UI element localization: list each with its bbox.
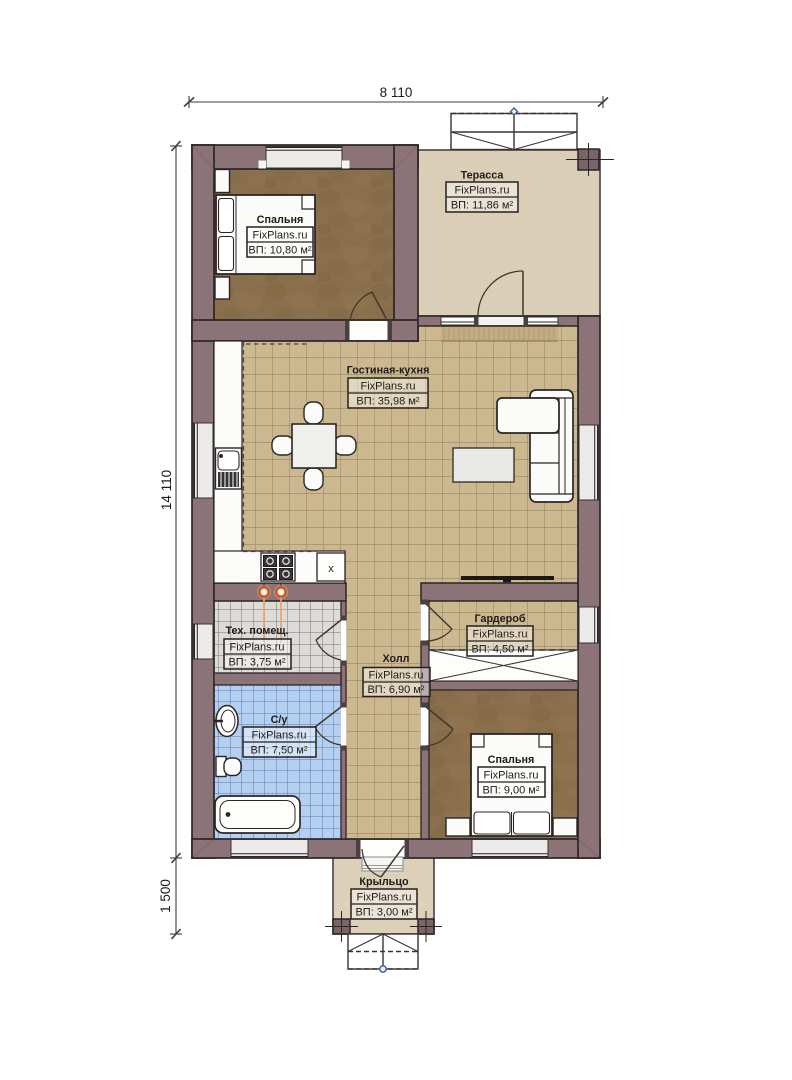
svg-text:Холл: Холл: [382, 653, 409, 665]
svg-text:ВП: 6,90 м²: ВП: 6,90 м²: [367, 684, 424, 696]
svg-text:Терасса: Терасса: [461, 170, 505, 182]
svg-text:FixPlans.ru: FixPlans.ru: [472, 629, 527, 641]
svg-text:ВП: 3,75 м²: ВП: 3,75 м²: [228, 657, 285, 669]
svg-text:ВП: 11,86 м²: ВП: 11,86 м²: [451, 200, 514, 212]
svg-text:Спальня: Спальня: [488, 754, 535, 766]
svg-text:ВП: 9,00 м²: ВП: 9,00 м²: [482, 785, 539, 797]
svg-text:FixPlans.ru: FixPlans.ru: [454, 185, 509, 197]
svg-text:Крыльцо: Крыльцо: [359, 876, 409, 888]
svg-text:14 110: 14 110: [159, 470, 174, 510]
svg-text:ВП: 10,80 м²: ВП: 10,80 м²: [248, 245, 312, 257]
svg-text:FixPlans.ru: FixPlans.ru: [252, 230, 307, 242]
svg-text:1 500: 1 500: [158, 879, 173, 913]
svg-text:С/у: С/у: [271, 714, 288, 726]
svg-text:FixPlans.ru: FixPlans.ru: [229, 642, 284, 654]
svg-text:8 110: 8 110: [380, 85, 413, 100]
svg-text:Гостиная-кухня: Гостиная-кухня: [347, 365, 430, 377]
svg-text:Спальня: Спальня: [257, 214, 304, 226]
svg-text:Гардероб: Гардероб: [474, 613, 525, 625]
svg-text:ВП: 3,00 м²: ВП: 3,00 м²: [355, 907, 412, 919]
svg-text:ВП: 4,50 м²: ВП: 4,50 м²: [471, 644, 528, 656]
svg-text:FixPlans.ru: FixPlans.ru: [251, 730, 306, 742]
svg-text:FixPlans.ru: FixPlans.ru: [483, 770, 538, 782]
svg-text:Тех. помещ.: Тех. помещ.: [226, 625, 289, 637]
svg-text:ВП: 35,98 м²: ВП: 35,98 м²: [356, 396, 420, 408]
svg-text:FixPlans.ru: FixPlans.ru: [360, 381, 415, 393]
svg-text:FixPlans.ru: FixPlans.ru: [356, 892, 411, 904]
svg-text:FixPlans.ru: FixPlans.ru: [368, 670, 423, 682]
svg-text:ВП: 7,50 м²: ВП: 7,50 м²: [250, 745, 307, 757]
svg-text:x: x: [328, 563, 334, 575]
